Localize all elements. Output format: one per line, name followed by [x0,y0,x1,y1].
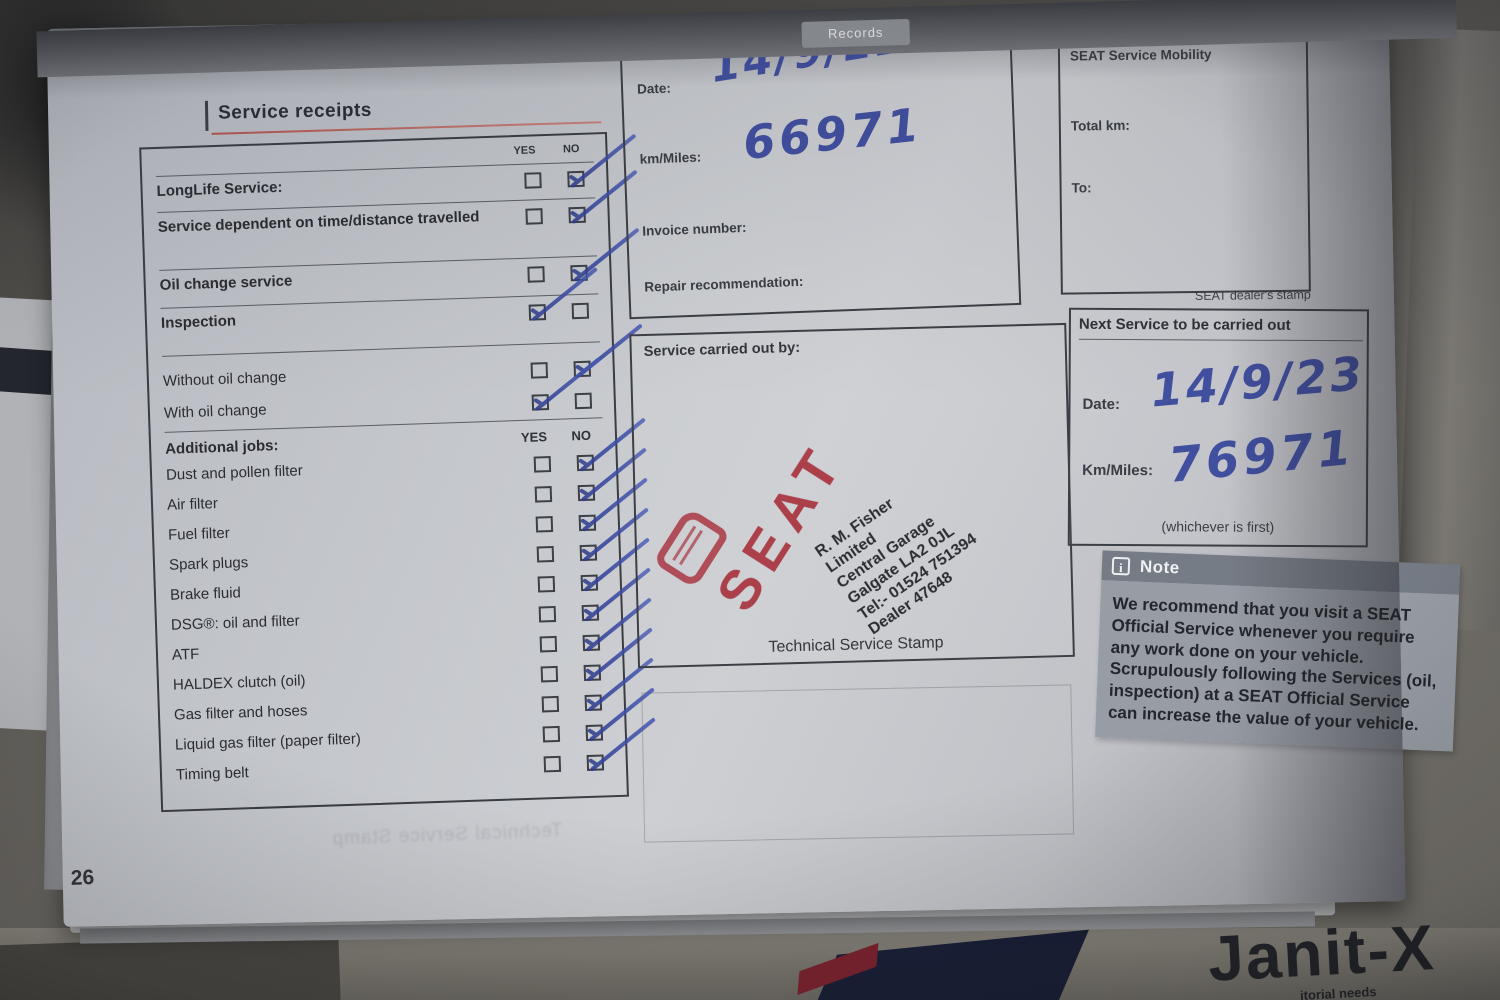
yes-checkbox [529,304,547,321]
yes-checkbox [543,726,561,743]
no-checkbox [567,171,585,188]
desk-brand-subtext: itorial needs [1300,984,1377,1000]
no-checkbox [582,605,600,622]
yes-checkbox [540,636,558,653]
no-checkbox [579,515,597,532]
note-title: Note [1140,557,1181,579]
no-checkbox [583,635,601,652]
no-column-header: NO [571,428,591,444]
checklist-row-label: Service dependent on time/distance trave… [158,207,526,238]
yes-checkbox [537,546,555,563]
checklist-main-rows: LongLife Service: Service dependent on t… [156,162,602,432]
info-icon: i [1112,557,1131,576]
desk-shadow-corner [0,933,341,1000]
date-label: Date: [637,81,671,97]
no-checkbox [581,575,599,592]
page-curve-shadow [1218,3,1405,904]
title-bracket [205,101,209,131]
invoice-number-label: Invoice number: [642,220,747,239]
yes-column-header: YES [513,144,535,157]
yes-checkbox [539,606,557,623]
next-service-date-label: Date: [1082,396,1120,413]
no-checkbox [572,303,590,320]
service-book-page: Records Service receipts YES NO LongLife… [47,3,1406,927]
show-through-ghost-text: Technical Service Stamp [287,819,608,853]
km-miles-label: km/Miles: [639,149,701,166]
checklist-row-label: Timing belt [176,754,544,785]
checklist-row-label: Oil change service [159,265,527,296]
total-km-label: Total km: [1071,118,1130,134]
service-checklist: YES NO LongLife Service: Service depende… [139,132,629,812]
no-checkbox [578,485,596,502]
yes-checkbox [531,362,549,379]
seat-logo-stamp: SEAT [656,401,858,622]
service-carried-out-label: Service carried out by: [644,340,801,360]
next-service-km-label: Km/Miles: [1082,462,1153,479]
checklist-row-label: LongLife Service: [156,171,524,202]
yes-column-header: YES [521,429,547,445]
seat-wordmark: SEAT [703,431,857,622]
no-checkbox [568,207,586,224]
yes-checkbox [541,666,559,683]
no-checkbox [580,545,598,562]
yes-checkbox [542,696,560,713]
checklist-row-label: With oil change [164,393,532,424]
repair-recommendation-label: Repair recommendation: [644,274,803,295]
page-title: Service receipts [218,100,372,125]
technical-service-stamp-caption: Technical Service Stamp [639,631,1072,660]
yes-checkbox [534,456,552,473]
no-checkbox [585,694,603,711]
additional-jobs-label: Additional jobs: [165,437,279,458]
section-tab: Records [801,19,910,48]
service-record-column: Date: km/Miles: Invoice number: Repair r… [617,24,1083,852]
yes-checkbox [525,208,543,225]
checklist-additional-rows: Dust and pollen filter Air filter Fuel f… [166,446,615,790]
checklist-row-label: Inspection [161,303,529,334]
checklist-row-label: Without oil change [163,361,531,392]
no-checkbox [577,455,595,472]
yes-checkbox [544,756,562,773]
service-record-box: Date: km/Miles: Invoice number: Repair r… [620,40,1021,319]
yes-checkbox [524,172,542,189]
mobility-title: SEAT Service Mobility [1070,47,1212,64]
to-label: To: [1072,180,1092,195]
no-checkbox [586,724,604,741]
no-checkbox [587,754,605,771]
no-checkbox [575,393,593,410]
service-carried-out-box: Service carried out by: R. M. Fisher Lim… [629,323,1075,668]
no-checkbox [584,664,602,681]
yes-checkbox [538,576,556,593]
yes-checkbox [536,516,554,533]
no-column-header: NO [563,143,580,156]
yes-checkbox [527,266,545,283]
yes-checkbox [532,394,550,411]
photo-scene: Janit-X itorial needs W 5 12 19 26 Recor… [0,0,1500,1000]
show-through-ghost-box [641,684,1074,842]
yes-checkbox [535,486,553,503]
page-number: 26 [70,866,94,891]
handwritten-service-mileage: 66971 [741,97,926,170]
